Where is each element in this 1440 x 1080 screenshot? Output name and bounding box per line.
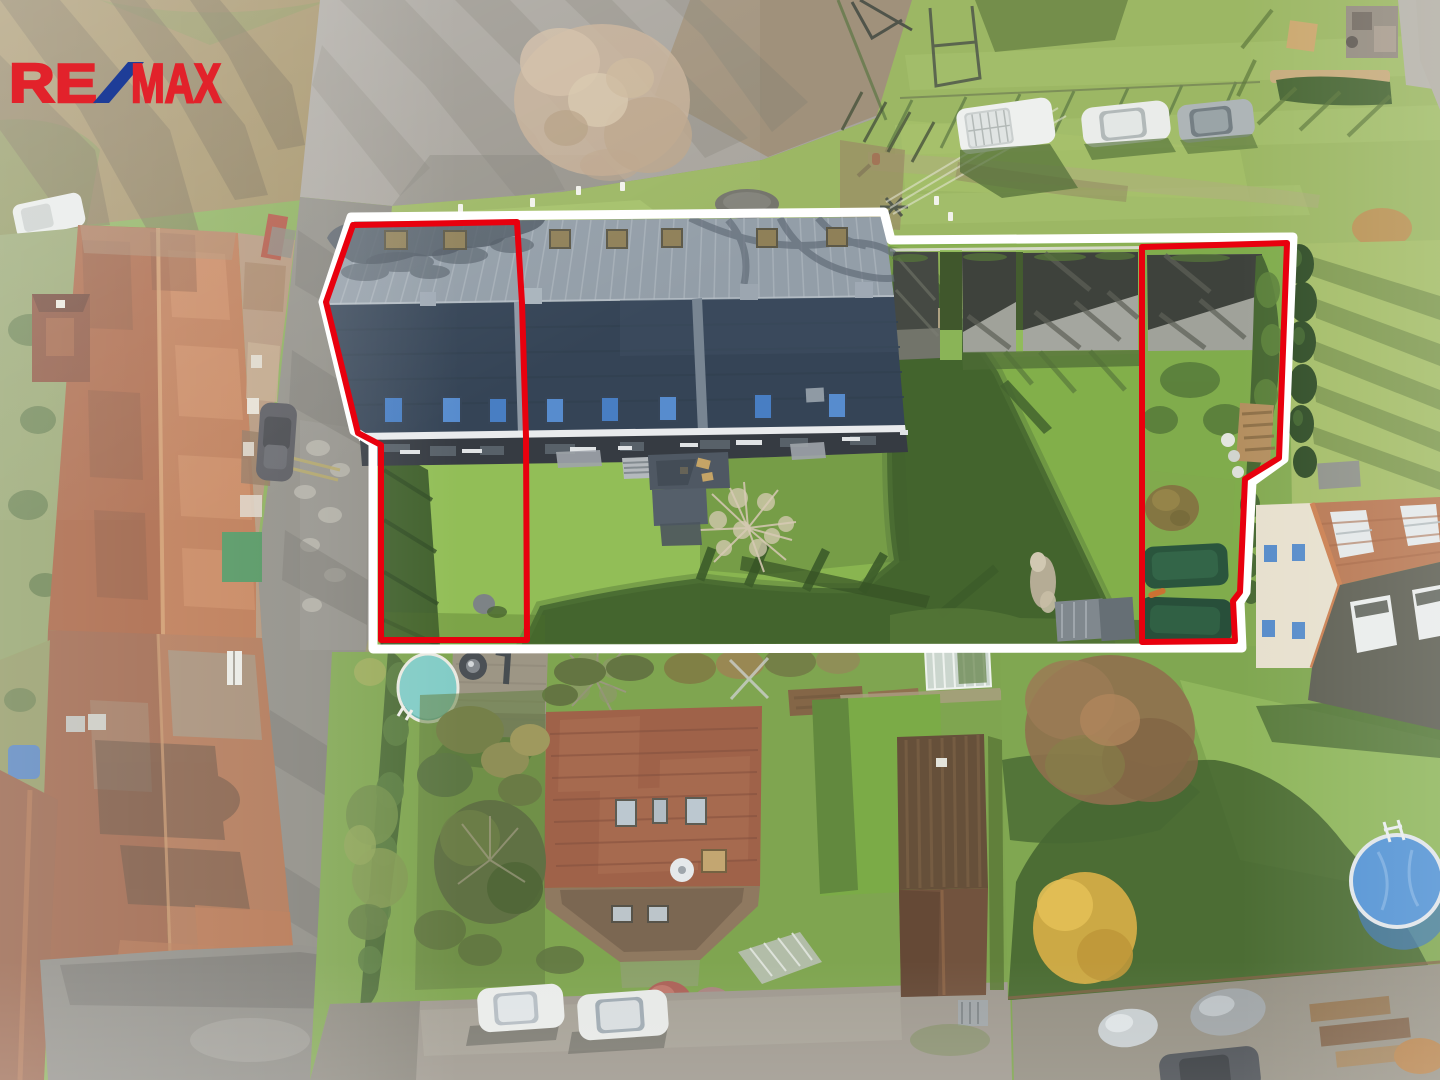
- svg-text:RE: RE: [9, 52, 97, 114]
- svg-text:MAX: MAX: [131, 52, 221, 114]
